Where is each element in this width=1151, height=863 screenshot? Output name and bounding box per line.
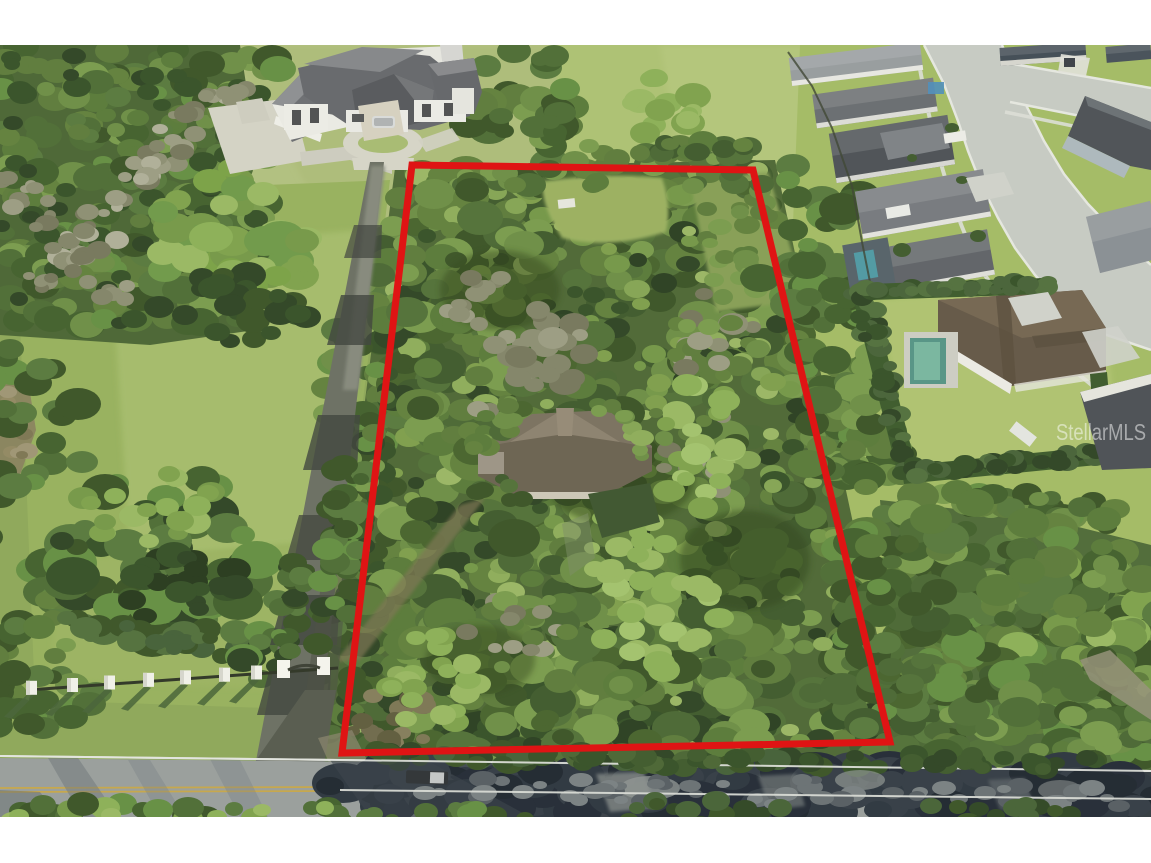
svg-text:StellarMLS: StellarMLS <box>1056 419 1146 445</box>
